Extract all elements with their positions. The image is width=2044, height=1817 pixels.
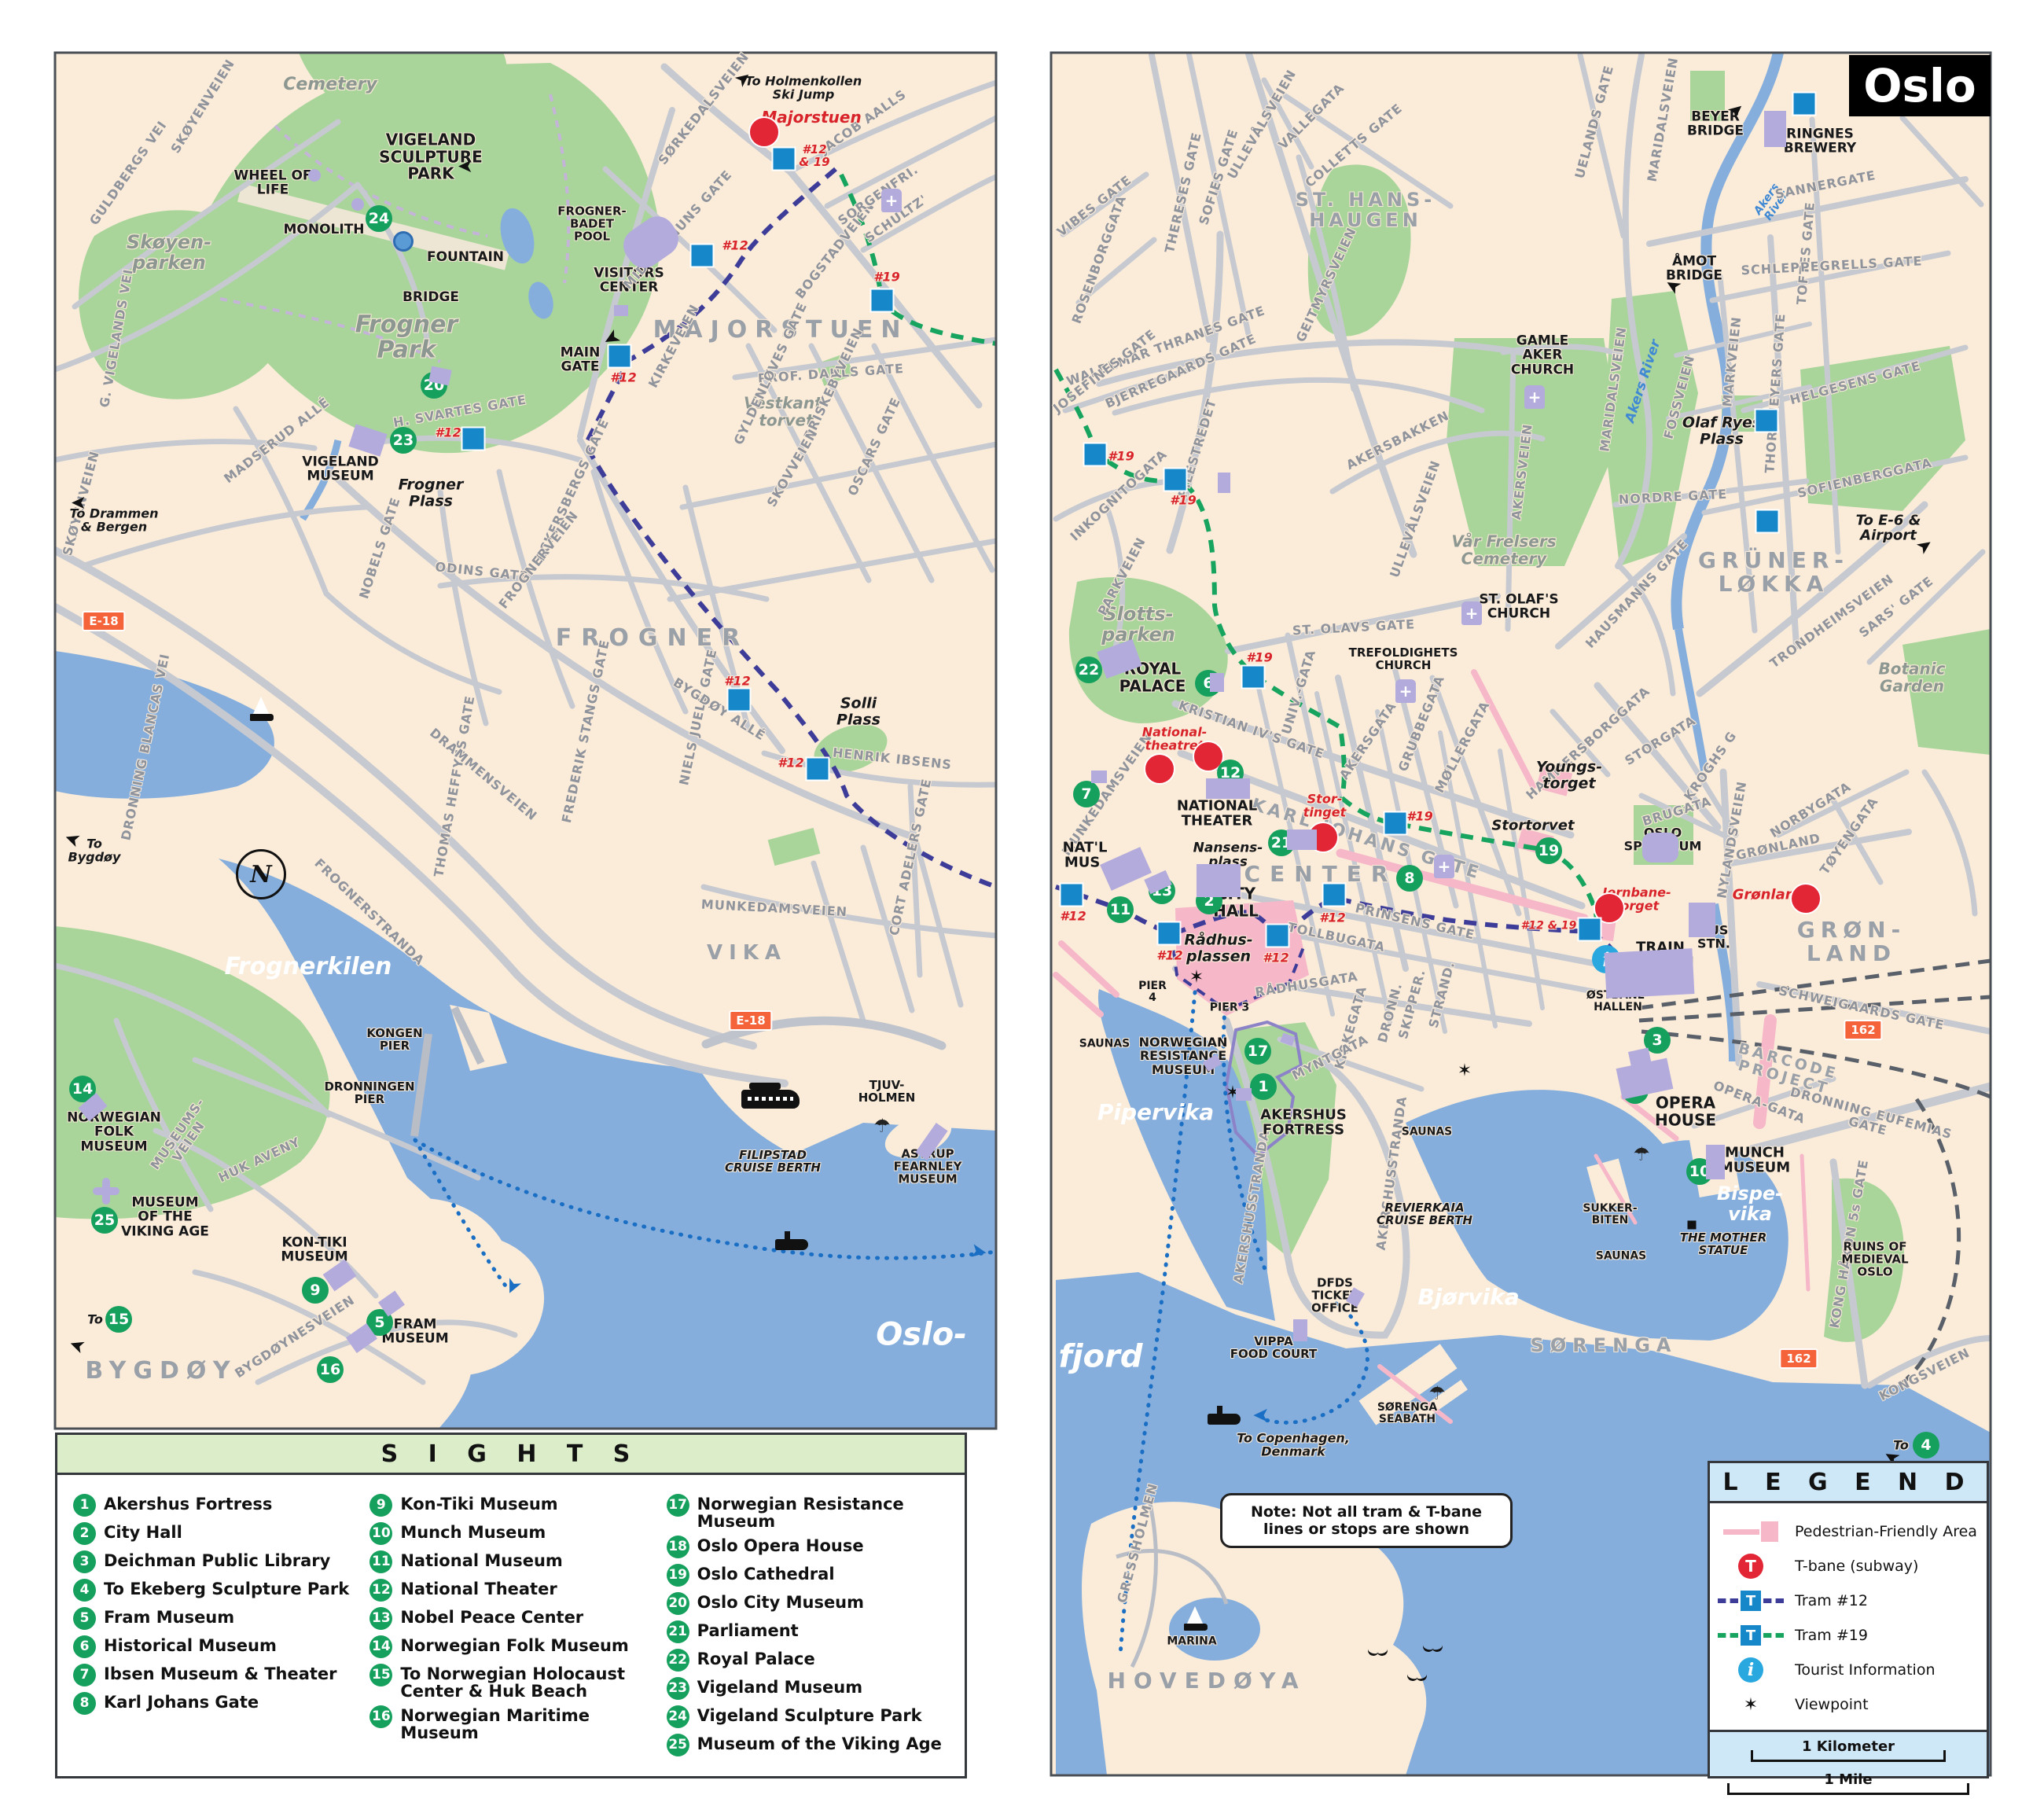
sight-item: 5Fram Museum (73, 1609, 363, 1630)
sight-item: 3Deichman Public Library (73, 1552, 363, 1573)
sight-number: 2 (73, 1522, 96, 1545)
building (1293, 1319, 1307, 1341)
sight-label: Oslo City Museum (697, 1594, 864, 1611)
sight-item: 20Oslo City Museum (667, 1594, 957, 1615)
sight-label: Kon-Tiki Museum (400, 1495, 557, 1513)
sight-label: National Theater (400, 1580, 557, 1598)
legend-label: Viewpoint (1795, 1696, 1869, 1713)
sight-label: Norwegian Resistance Museum (697, 1495, 957, 1530)
sight-item: 14Norwegian Folk Museum (369, 1637, 660, 1658)
oslo-tourist-map: CemeteryVIGELAND SCULPTURE PARKWHEEL OF … (0, 0, 2044, 1817)
sight-number: 6 (73, 1635, 96, 1658)
legend-title: L E G E N D (1710, 1463, 1987, 1503)
sight-label: Akershus Fortress (104, 1495, 272, 1513)
sight-number: 4 (73, 1579, 96, 1602)
sight-number: 9 (369, 1494, 392, 1517)
building (1236, 1088, 1252, 1101)
sight-item: 23Vigeland Museum (667, 1679, 957, 1700)
sight-item: 6Historical Museum (73, 1637, 363, 1658)
sight-number: 8 (73, 1692, 96, 1715)
sight-number: 10 (369, 1522, 392, 1545)
building (1210, 673, 1224, 692)
building (1218, 473, 1230, 493)
sights-column: 17Norwegian Resistance Museum18Oslo Oper… (667, 1495, 957, 1768)
sight-number: 12 (369, 1579, 392, 1602)
building (614, 305, 628, 316)
sight-item: 19Oslo Cathedral (667, 1565, 957, 1587)
sight-item: 18Oslo Opera House (667, 1537, 957, 1558)
sight-number: 21 (667, 1620, 689, 1643)
sight-number: 11 (369, 1550, 392, 1573)
sight-label: Norwegian Folk Museum (400, 1637, 628, 1654)
tram19-icon: T (1718, 1618, 1784, 1653)
sight-number: 5 (73, 1607, 96, 1630)
sight-label: Historical Museum (104, 1637, 277, 1654)
sight-label: Vigeland Sculpture Park (697, 1707, 922, 1724)
legend-label: Tram #19 (1795, 1627, 1868, 1644)
building (1206, 778, 1250, 799)
sight-item: 15To Norwegian Holocaust Center & Huk Be… (369, 1665, 660, 1700)
legend-item-tram19: TTram #19 (1718, 1618, 1977, 1653)
sight-label: Oslo Opera House (697, 1537, 864, 1554)
legend-label: Tourist Information (1795, 1661, 1936, 1679)
building (1706, 1145, 1725, 1179)
sight-item: 22Royal Palace (667, 1650, 957, 1672)
sight-label: City Hall (104, 1524, 182, 1541)
map-note: Note: Not all tram & T-bane lines or sto… (1220, 1493, 1513, 1548)
sight-item: 1Akershus Fortress (73, 1495, 363, 1517)
sight-label: Deichman Public Library (104, 1552, 330, 1569)
sight-label: Oslo Cathedral (697, 1565, 835, 1583)
sight-number: 24 (667, 1705, 689, 1728)
sights-header: S I G H T S (55, 1433, 967, 1475)
sight-number: 1 (73, 1494, 96, 1517)
sight-item: 4To Ekeberg Sculpture Park (73, 1580, 363, 1602)
scale-mile: 1 Mile (1722, 1773, 1974, 1797)
tram12-icon: T (1718, 1583, 1784, 1618)
legend-label: T-bane (subway) (1795, 1558, 1918, 1575)
pedestrian-area-icon (1718, 1514, 1784, 1549)
sight-number: 22 (667, 1649, 689, 1672)
sight-number: 18 (667, 1536, 689, 1558)
sight-number: 13 (369, 1607, 392, 1630)
sight-number: 3 (73, 1550, 96, 1573)
sight-item: 16Norwegian Maritime Museum (369, 1707, 660, 1742)
sight-item: 17Norwegian Resistance Museum (667, 1495, 957, 1530)
sight-number: 16 (369, 1705, 392, 1728)
building (1091, 771, 1107, 783)
sight-label: Munch Museum (400, 1524, 546, 1541)
building (1689, 903, 1715, 937)
legend-item-vp: ✶Viewpoint (1718, 1687, 1977, 1722)
building (1287, 829, 1317, 850)
sight-item: 13Nobel Peace Center (369, 1609, 660, 1630)
sight-number: 20 (667, 1592, 689, 1615)
legend-item-tbane: TT-bane (subway) (1718, 1549, 1977, 1583)
scale-kilometer: 1 Kilometer (1722, 1740, 1974, 1764)
sights-list: 1Akershus Fortress2City Hall3Deichman Pu… (55, 1475, 967, 1778)
legend-scale: 1 Kilometer 1 Mile (1710, 1732, 1987, 1797)
legend-label: Tram #12 (1795, 1592, 1868, 1609)
sight-number: 7 (73, 1664, 96, 1686)
tbane-icon: T (1718, 1549, 1784, 1583)
sights-column: 1Akershus Fortress2City Hall3Deichman Pu… (73, 1495, 363, 1768)
legend: L E G E N D Pedestrian-Friendly AreaTT-b… (1708, 1461, 1989, 1778)
sight-label: National Museum (400, 1552, 562, 1569)
sight-item: 12National Theater (369, 1580, 660, 1602)
viewpoint-icon: ✶ (1718, 1687, 1784, 1722)
sight-item: 8Karl Johans Gate (73, 1694, 363, 1715)
sight-label: Norwegian Maritime Museum (400, 1707, 660, 1742)
sight-item: 25Museum of the Viking Age (667, 1735, 957, 1756)
sight-number: 14 (369, 1635, 392, 1658)
sight-label: Karl Johans Gate (104, 1694, 259, 1711)
building (1605, 948, 1695, 999)
tourist-info-icon: i (1718, 1653, 1784, 1687)
sight-label: Royal Palace (697, 1650, 815, 1668)
sight-item: 7Ibsen Museum & Theater (73, 1665, 363, 1686)
sight-label: Nobel Peace Center (400, 1609, 583, 1626)
sight-item: 10Munch Museum (369, 1524, 660, 1545)
sight-label: Ibsen Museum & Theater (104, 1665, 337, 1683)
building (1197, 864, 1241, 897)
sight-number: 15 (369, 1664, 392, 1686)
sights-column: 9Kon-Tiki Museum10Munch Museum11National… (369, 1495, 660, 1768)
sight-number: 19 (667, 1564, 689, 1587)
legend-label: Pedestrian-Friendly Area (1795, 1523, 1977, 1540)
building (1642, 833, 1678, 863)
sight-item: 24Vigeland Sculpture Park (667, 1707, 957, 1728)
sight-label: To Norwegian Holocaust Center & Huk Beac… (400, 1665, 660, 1700)
map-title: Oslo (1849, 55, 1991, 116)
sight-item: 11National Museum (369, 1552, 660, 1573)
legend-item-info: iTourist Information (1718, 1653, 1977, 1687)
sight-label: Parliament (697, 1622, 799, 1639)
sight-label: Vigeland Museum (697, 1679, 862, 1696)
sight-number: 23 (667, 1677, 689, 1700)
legend-items: Pedestrian-Friendly AreaTT-bane (subway)… (1710, 1503, 1987, 1732)
sight-label: Fram Museum (104, 1609, 234, 1626)
sight-item: 21Parliament (667, 1622, 957, 1643)
building (1764, 111, 1786, 147)
legend-item-tram12: TTram #12 (1718, 1583, 1977, 1618)
sight-number: 25 (667, 1734, 689, 1756)
sight-item: 9Kon-Tiki Museum (369, 1495, 660, 1517)
legend-item-ped: Pedestrian-Friendly Area (1718, 1514, 1977, 1549)
sight-number: 17 (667, 1494, 689, 1517)
sight-item: 2City Hall (73, 1524, 363, 1545)
sight-label: Museum of the Viking Age (697, 1735, 942, 1753)
sight-label: To Ekeberg Sculpture Park (104, 1580, 349, 1598)
